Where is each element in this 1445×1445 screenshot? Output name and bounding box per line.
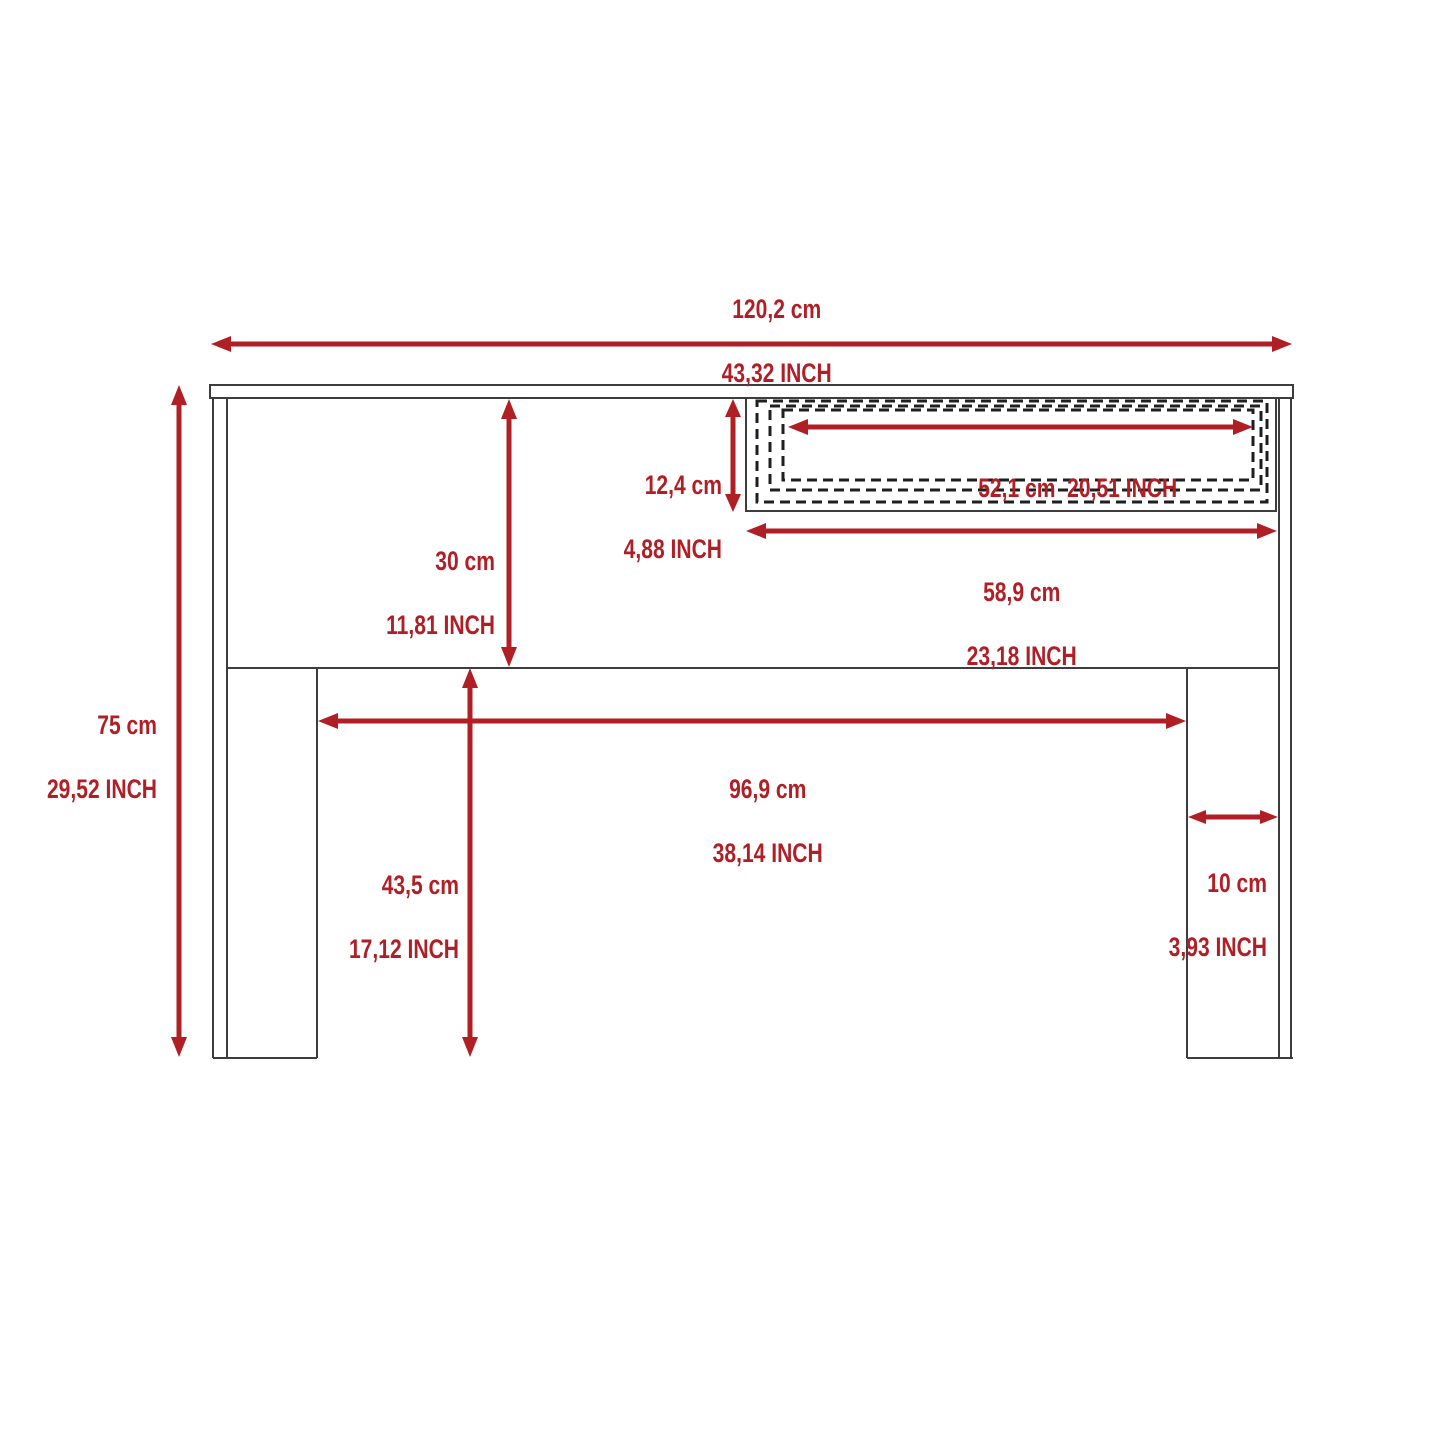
drawer-opening-width-inch: 23,18 INCH — [967, 641, 1077, 671]
dimension-label-space-between-legs: 96,9 cm 38,14 INCH — [600, 741, 912, 901]
dimension-diagram: 120,2 cm 43,32 INCH 75 cm 29,52 INCH 12,… — [0, 0, 1445, 1445]
space-between-legs-inch: 38,14 INCH — [713, 838, 823, 868]
dimension-arrow-overall-height — [171, 385, 187, 1057]
leg-height-cm: 43,5 cm — [382, 870, 459, 900]
dimension-arrow-leg-height — [462, 668, 478, 1057]
overall-height-inch: 29,52 INCH — [47, 774, 157, 804]
leg-height-inch: 17,12 INCH — [349, 934, 459, 964]
dimension-arrow-leg-width — [1188, 810, 1278, 824]
dimension-label-top-section-height: 30 cm 11,81 INCH — [261, 513, 495, 673]
dimension-label-leg-height: 43,5 cm 17,12 INCH — [225, 837, 459, 997]
diagram-drawing — [0, 0, 1445, 1445]
dimension-label-leg-width: 10 cm 3,93 INCH — [1033, 835, 1267, 995]
drawer-opening-width-cm: 58,9 cm — [983, 577, 1060, 607]
dimension-label-overall-width: 120,2 cm 43,32 INCH — [609, 261, 921, 421]
overall-width-inch: 43,32 INCH — [722, 358, 832, 388]
overall-height-cm: 75 cm — [97, 710, 157, 740]
dimension-arrow-space-between-legs — [318, 713, 1186, 729]
drawer-front-height-inch: 4,88 INCH — [624, 534, 722, 564]
top-section-height-inch: 11,81 INCH — [386, 610, 495, 640]
drawer-inner-width-value: 52,1 cm 20,51 INCH — [978, 473, 1177, 503]
leg-width-inch: 3,93 INCH — [1169, 932, 1267, 962]
top-section-height-cm: 30 cm — [435, 546, 495, 576]
overall-width-cm: 120,2 cm — [732, 294, 821, 324]
leg-width-cm: 10 cm — [1207, 868, 1267, 898]
dimension-label-drawer-front-height: 12,4 cm 4,88 INCH — [488, 437, 722, 597]
dimension-arrow-drawer-inner-width — [788, 419, 1253, 435]
drawer-front-height-cm: 12,4 cm — [645, 470, 722, 500]
dimension-label-drawer-inner-width: 52,1 cm 20,51 INCH — [910, 440, 1222, 536]
dimension-label-overall-height: 75 cm 29,52 INCH — [0, 677, 157, 837]
space-between-legs-cm: 96,9 cm — [729, 774, 806, 804]
dimension-label-drawer-opening-width: 58,9 cm 23,18 INCH — [854, 544, 1166, 704]
